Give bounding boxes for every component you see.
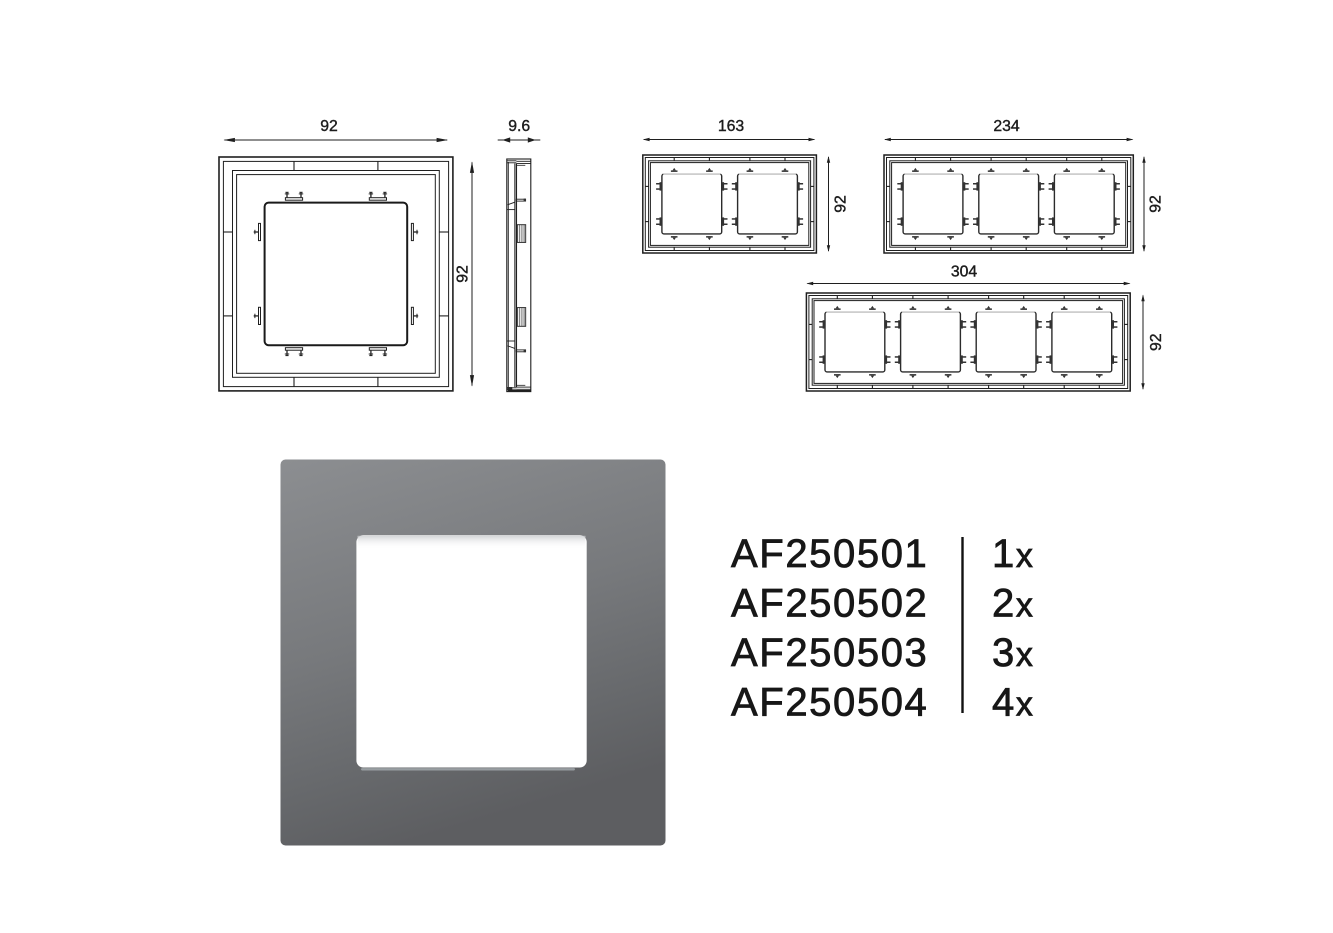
svg-text:234: 234 xyxy=(993,118,1020,135)
svg-text:2x: 2x xyxy=(992,582,1034,626)
svg-text:92: 92 xyxy=(833,195,850,213)
svg-text:AF250502: AF250502 xyxy=(731,582,928,626)
svg-text:92: 92 xyxy=(1148,195,1165,213)
svg-text:3x: 3x xyxy=(992,631,1034,675)
svg-text:9.6: 9.6 xyxy=(508,118,530,135)
svg-text:1x: 1x xyxy=(992,532,1034,576)
svg-text:AF250503: AF250503 xyxy=(731,631,928,675)
svg-text:92: 92 xyxy=(455,265,472,283)
svg-text:AF250501: AF250501 xyxy=(731,532,928,576)
svg-text:92: 92 xyxy=(1148,333,1165,351)
svg-text:304: 304 xyxy=(951,264,978,281)
svg-text:163: 163 xyxy=(718,118,745,135)
svg-text:4x: 4x xyxy=(992,681,1034,725)
svg-text:92: 92 xyxy=(320,118,338,135)
svg-text:AF250504: AF250504 xyxy=(731,681,928,725)
